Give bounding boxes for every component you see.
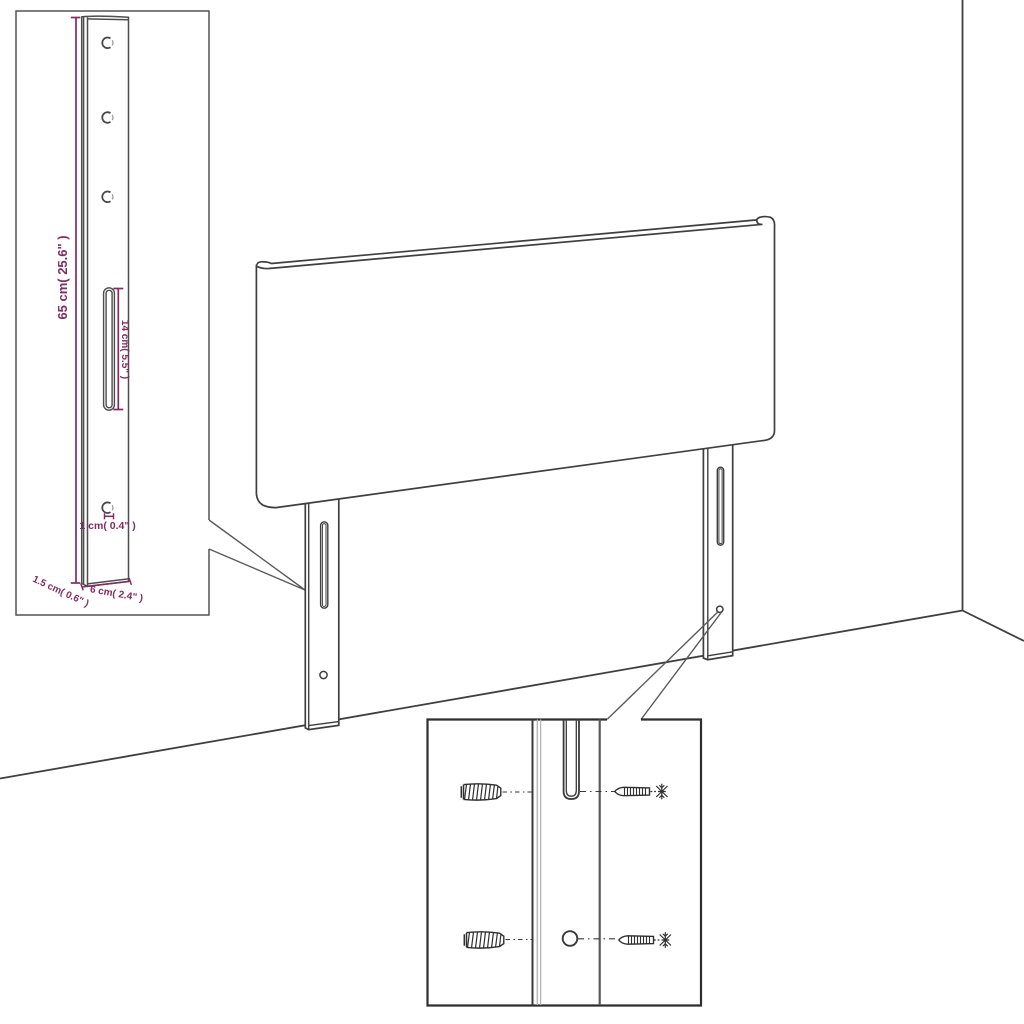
svg-text:1 cm( 0.4" ): 1 cm( 0.4" ) <box>79 520 135 532</box>
svg-text:14 cm( 5.5" ): 14 cm( 5.5" ) <box>119 320 130 379</box>
svg-text:65 cm( 25.6" ): 65 cm( 25.6" ) <box>55 235 70 319</box>
